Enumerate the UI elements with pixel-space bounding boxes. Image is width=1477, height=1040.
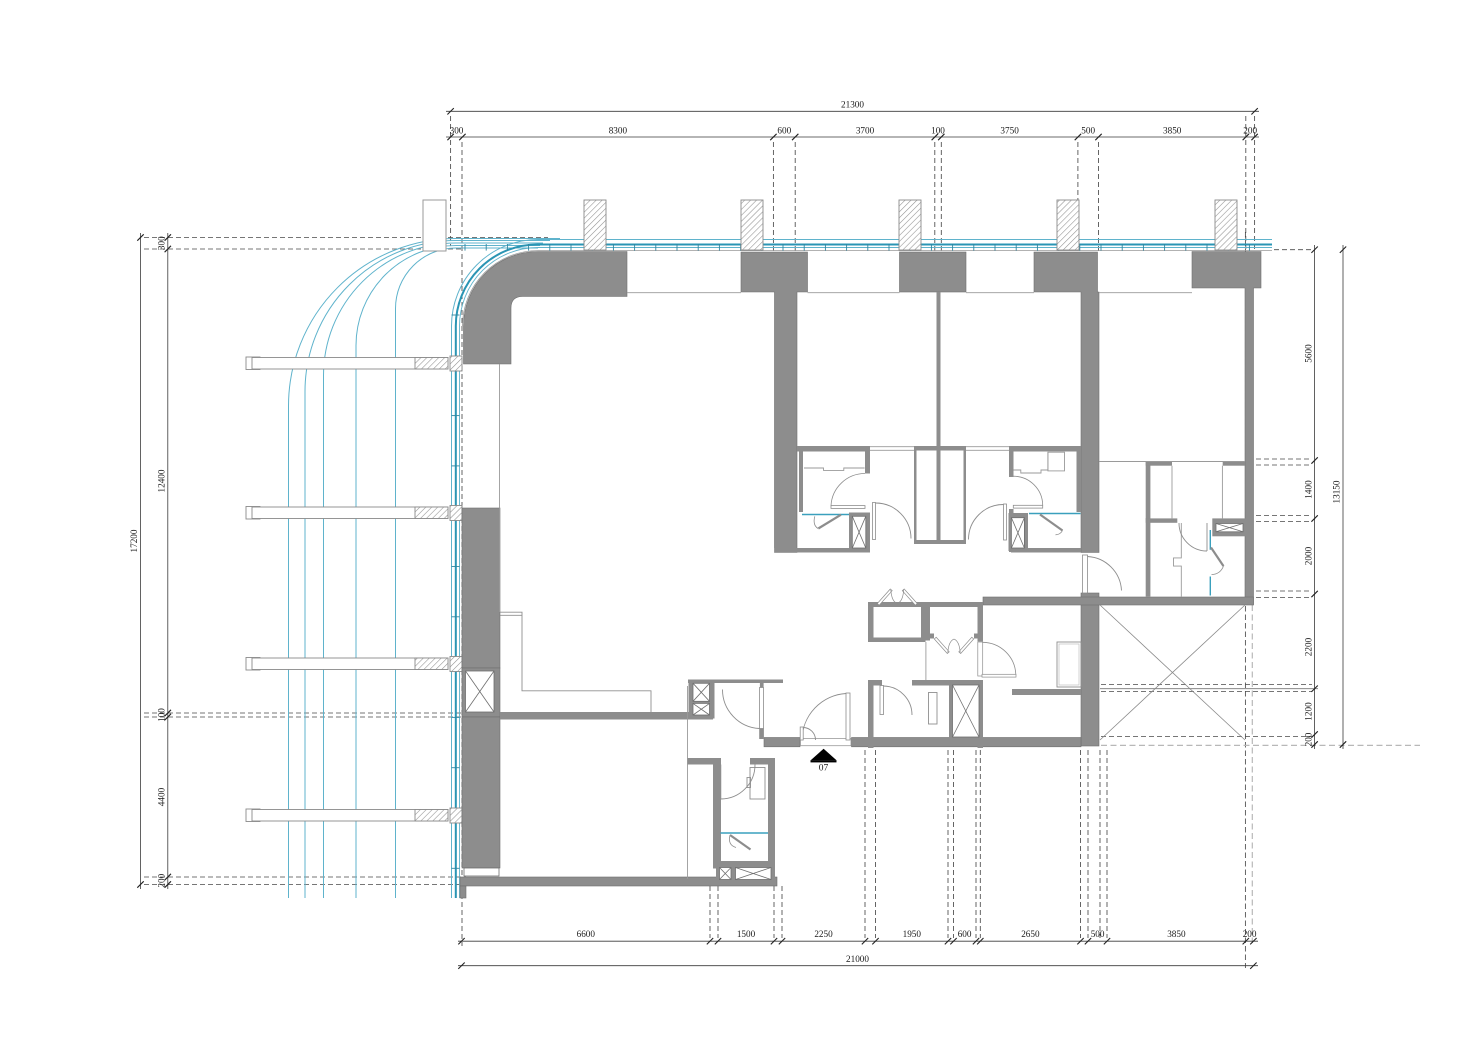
svg-text:21000: 21000 <box>846 954 869 964</box>
svg-text:5600: 5600 <box>1304 344 1314 363</box>
svg-text:200: 200 <box>157 873 167 887</box>
svg-text:300: 300 <box>157 236 167 250</box>
svg-text:200: 200 <box>1243 929 1257 939</box>
svg-text:1500: 1500 <box>737 929 756 939</box>
svg-text:500: 500 <box>1091 929 1105 939</box>
svg-text:1950: 1950 <box>903 929 922 939</box>
svg-text:3700: 3700 <box>856 126 875 136</box>
svg-text:07: 07 <box>819 764 829 774</box>
svg-text:13150: 13150 <box>1332 480 1342 503</box>
svg-text:3850: 3850 <box>1167 929 1186 939</box>
svg-text:2250: 2250 <box>814 929 833 939</box>
svg-text:100: 100 <box>931 126 945 136</box>
svg-text:2650: 2650 <box>1021 929 1040 939</box>
svg-text:600: 600 <box>777 126 791 136</box>
svg-text:200: 200 <box>1243 126 1257 136</box>
svg-text:21300: 21300 <box>841 100 864 110</box>
svg-text:3750: 3750 <box>1000 126 1019 136</box>
svg-text:100: 100 <box>157 708 167 722</box>
svg-text:500: 500 <box>1081 126 1095 136</box>
svg-text:4400: 4400 <box>157 787 167 806</box>
svg-text:300: 300 <box>450 126 464 136</box>
svg-text:2200: 2200 <box>1304 637 1314 656</box>
svg-text:6600: 6600 <box>577 929 596 939</box>
svg-text:1200: 1200 <box>1304 702 1314 721</box>
svg-text:3850: 3850 <box>1163 126 1182 136</box>
svg-text:600: 600 <box>958 929 972 939</box>
svg-text:1400: 1400 <box>1304 480 1314 499</box>
svg-text:12400: 12400 <box>157 469 167 492</box>
svg-text:200: 200 <box>1304 732 1314 746</box>
svg-text:8300: 8300 <box>609 126 628 136</box>
svg-text:2000: 2000 <box>1304 546 1314 565</box>
svg-text:17200: 17200 <box>129 529 139 552</box>
